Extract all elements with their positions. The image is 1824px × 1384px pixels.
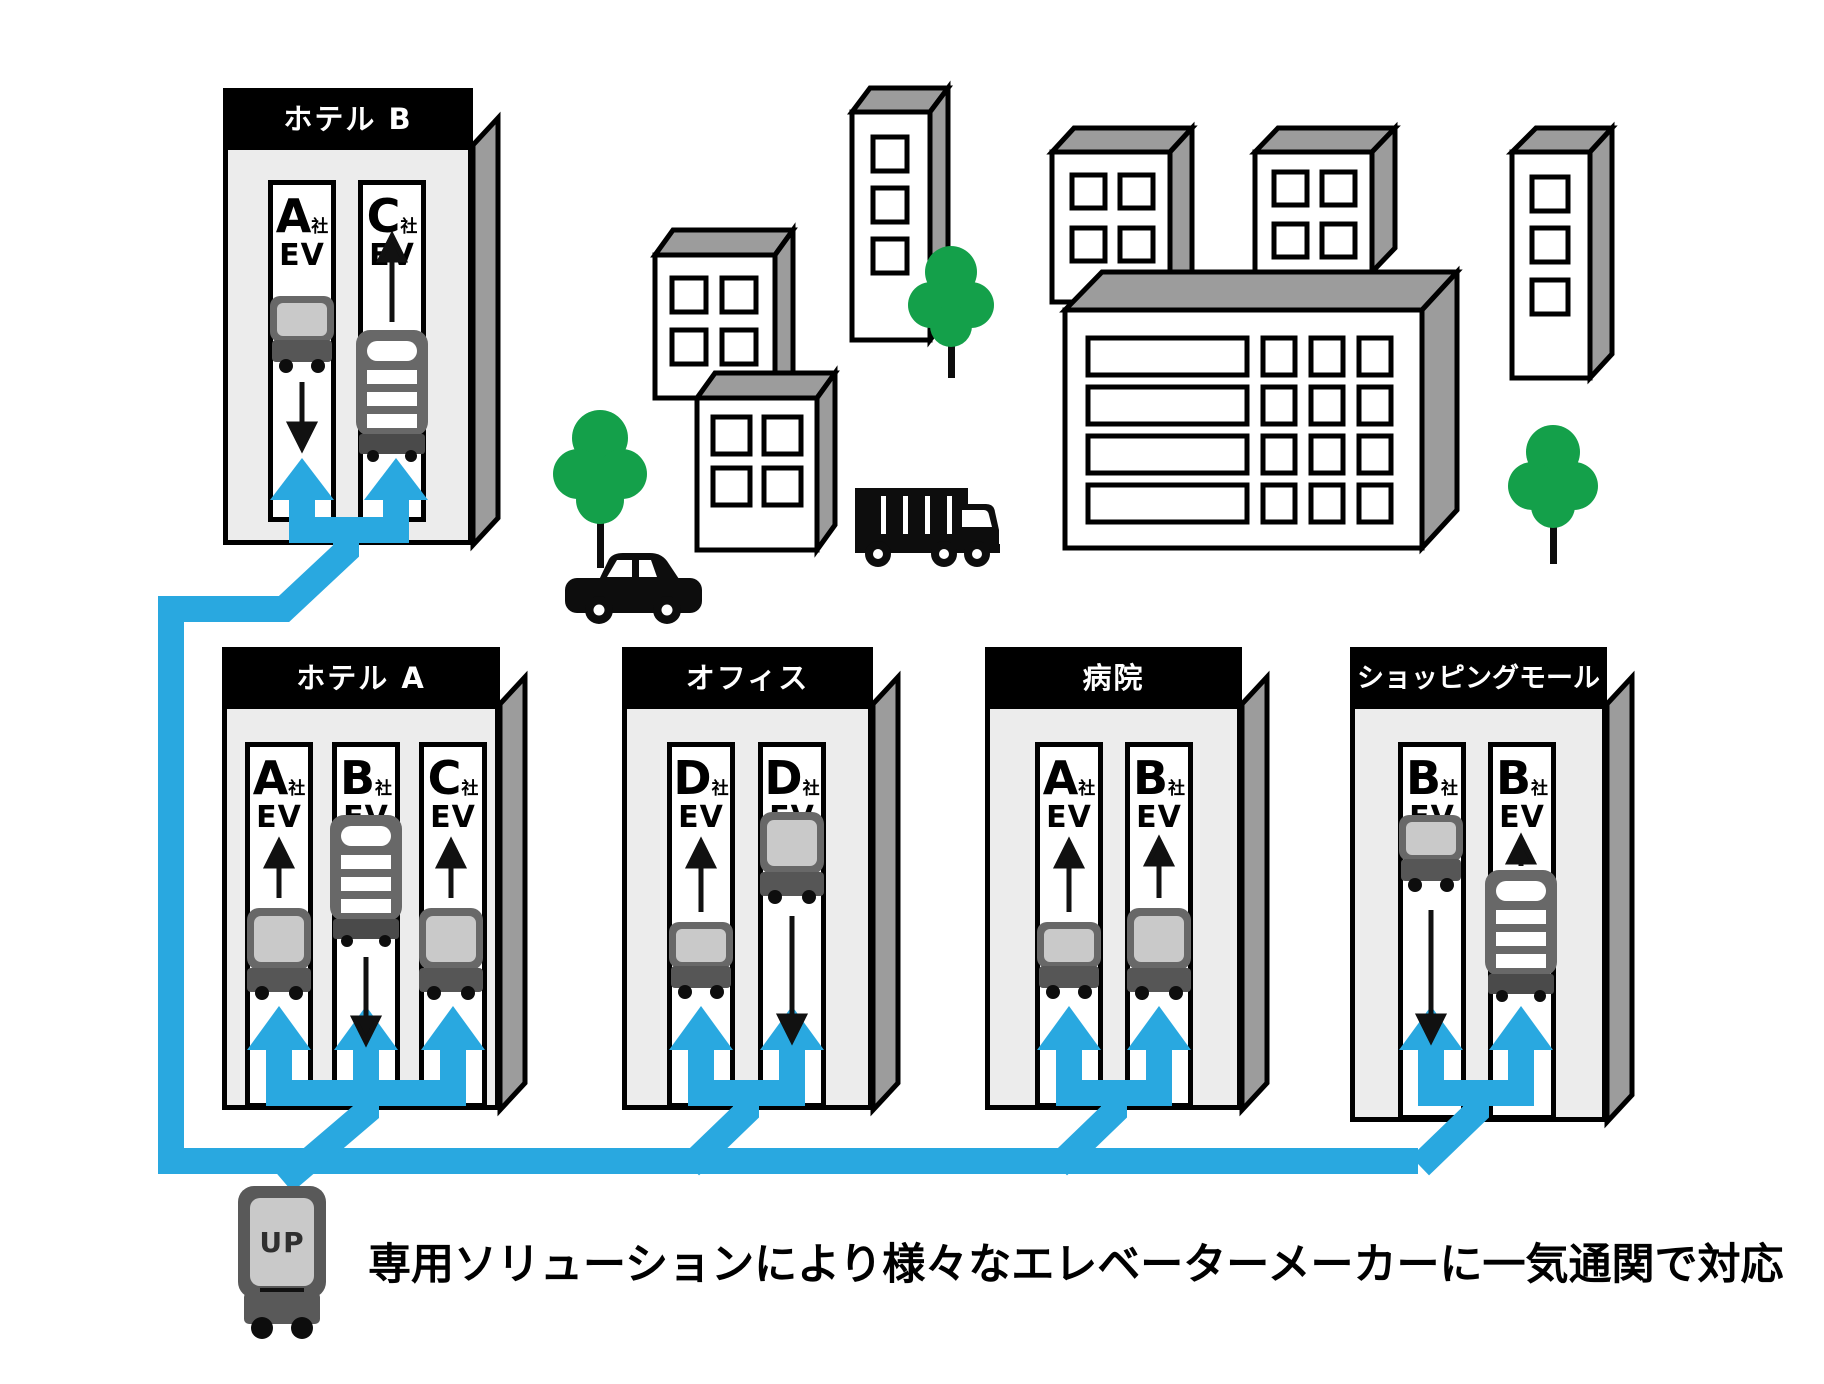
tree-icon [553, 410, 647, 568]
shaft-ev-label: EV [1130, 803, 1188, 833]
shaft-company-suffix: 社 [1078, 779, 1095, 799]
elevator-shaft: A社 EV [1035, 742, 1103, 1108]
building-facade [1350, 704, 1607, 1122]
shaft-ev-label: EV [424, 803, 482, 833]
building-title: ホテル B [223, 88, 473, 145]
shaft-ev-label: EV [1403, 803, 1461, 833]
diagram-canvas: ホテル B A社 EV C社 EV ホテル A A社 EV B社 EV C社 E… [0, 0, 1824, 1384]
shaft-ev-label: EV [273, 241, 331, 271]
shaft-ev-label: EV [763, 803, 821, 833]
building-title: 病院 [985, 647, 1242, 704]
building-facade [985, 704, 1242, 1110]
shaft-company: B [1496, 751, 1531, 805]
shaft-ev-label: EV [363, 241, 421, 271]
shaft-company: B [1406, 751, 1441, 805]
elevator-shaft: A社 EV [245, 742, 313, 1108]
shaft-company-suffix: 社 [1531, 779, 1548, 799]
building-shopping-mall: ショッピングモール B社 EV B社 EV [1350, 647, 1607, 1122]
shaft-company: A [253, 751, 289, 805]
building-hotel-a: ホテル A A社 EV B社 EV C社 EV [222, 647, 500, 1110]
shaft-company: C [367, 189, 401, 243]
city-tower-2 [1512, 128, 1612, 378]
building-title: ショッピングモール [1350, 647, 1607, 704]
shaft-company-suffix: 社 [375, 779, 392, 799]
shaft-company-suffix: 社 [803, 779, 820, 799]
caption-text: 専用ソリューションにより様々なエレベーターメーカーに一気通関で対応 [368, 1240, 1818, 1292]
shaft-company-suffix: 社 [461, 779, 478, 799]
building-title: オフィス [622, 647, 873, 704]
building-office: オフィス D社 EV D社 EV [622, 647, 873, 1110]
shaft-company-suffix: 社 [1441, 779, 1458, 799]
robot-up-label: UP [238, 1226, 326, 1259]
shaft-company: A [1043, 751, 1079, 805]
shaft-company-suffix: 社 [288, 779, 305, 799]
shaft-ev-label: EV [250, 803, 308, 833]
elevator-shaft: D社 EV [667, 742, 735, 1108]
shaft-company: B [1133, 751, 1168, 805]
truck-icon [855, 488, 1000, 567]
shaft-company-suffix: 社 [400, 217, 417, 237]
city-building-small-2 [697, 373, 835, 550]
city-building-large [1065, 272, 1457, 548]
shaft-company: D [764, 751, 802, 805]
elevator-shaft: B社 EV [332, 742, 400, 1108]
building-hotel-b: ホテル B A社 EV C社 EV [223, 88, 473, 545]
car-icon [565, 553, 702, 624]
city-building-small-4 [1255, 128, 1395, 272]
shaft-ev-label: EV [1040, 803, 1098, 833]
elevator-shaft: B社 EV [1398, 742, 1466, 1120]
tree-icon [1508, 425, 1598, 564]
elevator-shaft: B社 EV [1488, 742, 1556, 1120]
shaft-ev-label: EV [1493, 803, 1551, 833]
shaft-company: D [673, 751, 711, 805]
building-hospital: 病院 A社 EV B社 EV [985, 647, 1242, 1110]
shaft-company-suffix: 社 [712, 779, 729, 799]
shaft-ev-label: EV [337, 803, 395, 833]
building-facade [622, 704, 873, 1110]
shaft-company-suffix: 社 [1168, 779, 1185, 799]
elevator-shaft: B社 EV [1125, 742, 1193, 1108]
shaft-company-suffix: 社 [311, 217, 328, 237]
shaft-company: A [276, 189, 312, 243]
elevator-shaft: D社 EV [758, 742, 826, 1108]
shaft-ev-label: EV [672, 803, 730, 833]
elevator-shaft: A社 EV [268, 180, 336, 522]
shaft-company: B [340, 751, 375, 805]
building-facade [223, 145, 473, 545]
elevator-shaft: C社 EV [358, 180, 426, 522]
building-title: ホテル A [222, 647, 500, 704]
elevator-shaft: C社 EV [419, 742, 487, 1108]
shaft-company: C [428, 751, 462, 805]
